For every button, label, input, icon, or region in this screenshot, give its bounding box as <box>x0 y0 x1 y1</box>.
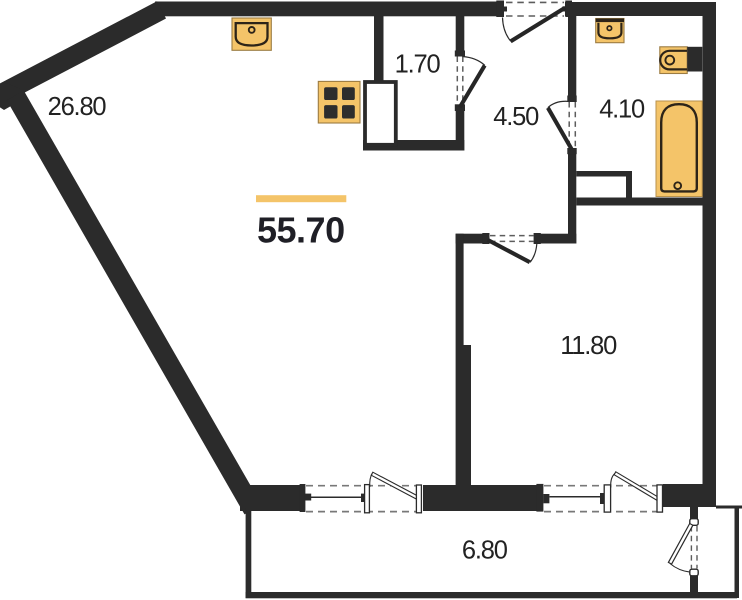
svg-text:55.70: 55.70 <box>257 210 345 251</box>
svg-text:4.50: 4.50 <box>493 103 539 131</box>
svg-text:4.10: 4.10 <box>599 95 645 123</box>
svg-text:11.80: 11.80 <box>560 332 617 360</box>
svg-text:6.80: 6.80 <box>462 537 508 565</box>
svg-text:26.80: 26.80 <box>48 93 107 121</box>
svg-text:1.70: 1.70 <box>395 51 441 79</box>
